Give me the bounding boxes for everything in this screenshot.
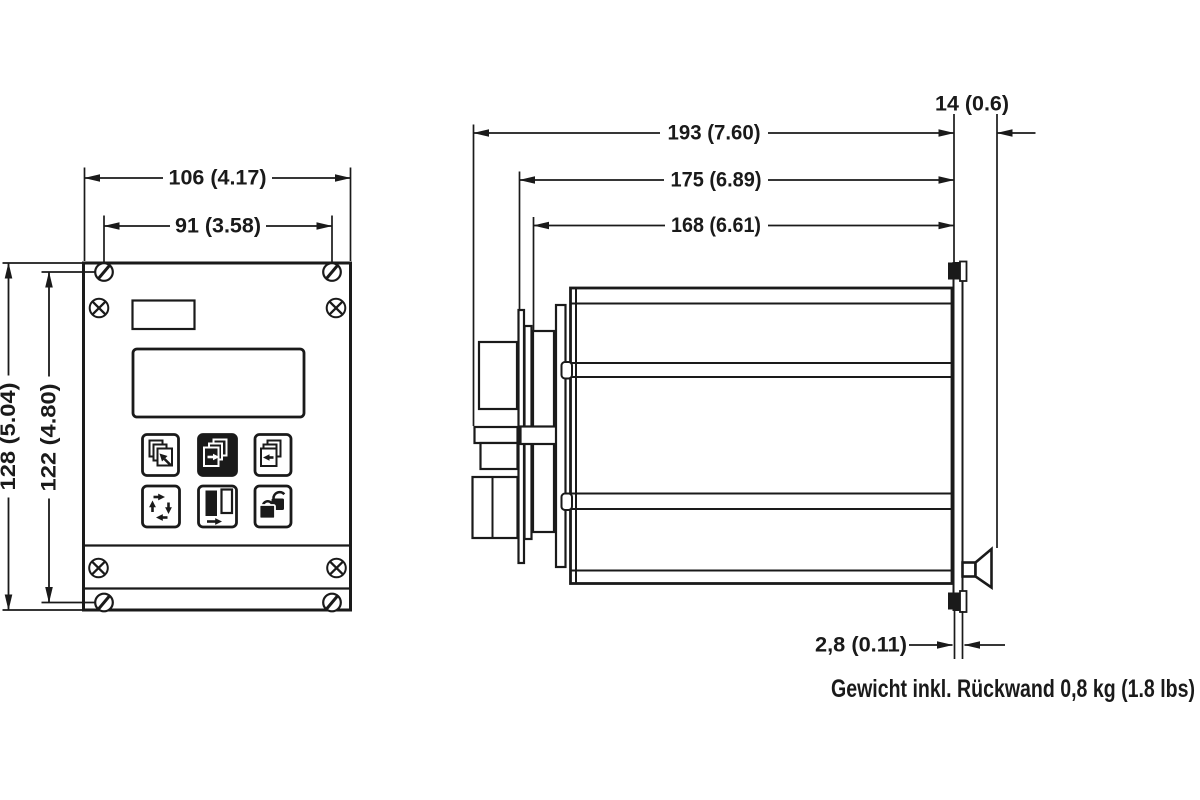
cross-screw-bottom-left xyxy=(89,559,108,578)
cross-screw-bottom-right xyxy=(327,559,346,578)
dim-height-fixings: 122 (4.80) xyxy=(38,384,61,492)
rear-connector-top xyxy=(479,342,517,409)
lcd-display-window xyxy=(133,349,304,417)
case-body xyxy=(571,288,953,584)
button-pages-up-left xyxy=(143,435,179,476)
rail-tab-top xyxy=(562,362,573,379)
button-pages-right-inverted xyxy=(199,435,237,476)
rear-connector-mid-upper xyxy=(475,427,518,443)
slotted-screw-bottom-right xyxy=(323,594,341,612)
dim-depth-total: 193 (7.60) xyxy=(668,122,761,145)
rear-connector-mid-lower xyxy=(481,443,518,469)
dim-front-panel-thickness: 2,8 (0.11) xyxy=(815,634,907,657)
type-label-window xyxy=(133,301,195,330)
button-pages-left xyxy=(255,435,291,476)
button-lock xyxy=(255,486,291,527)
dimension-drawing: 106 (4.17) 91 (3.58) 128 (5.04) 122 (4.8… xyxy=(0,0,1200,800)
front-panel-plate xyxy=(954,263,963,610)
cross-screw-top-right xyxy=(327,299,346,318)
front-view xyxy=(84,263,351,611)
rear-plate-3 xyxy=(556,305,566,567)
slotted-screw-top-left xyxy=(95,263,113,281)
rear-latch-bar xyxy=(521,427,559,445)
rear-connector-bottom xyxy=(473,477,518,538)
dimension-drawing-page: 106 (4.17) 91 (3.58) 128 (5.04) 122 (4.8… xyxy=(0,0,1200,800)
side-view xyxy=(473,262,992,613)
dim-width-fixings: 91 (3.58) xyxy=(175,215,261,238)
dim-depth-behind-panel: 175 (6.89) xyxy=(671,169,762,192)
dim-height-total: 128 (5.04) xyxy=(0,383,20,491)
slotted-screw-bottom-left xyxy=(95,594,113,612)
mounting-clamp-horn xyxy=(963,549,992,588)
panel-clip-bottom xyxy=(948,591,967,612)
dim-depth-case: 168 (6.61) xyxy=(671,214,761,237)
cross-screw-top-left xyxy=(90,299,109,318)
button-four-arrows xyxy=(143,486,180,527)
panel-clip-top xyxy=(948,262,967,282)
rail-tab-bottom xyxy=(562,494,573,511)
dim-width-total: 106 (4.17) xyxy=(169,167,267,190)
dim-front-frame-depth: 14 (0.6) xyxy=(935,93,1009,116)
weight-note: Gewicht inkl. Rückwand 0,8 kg (1.8 lbs) xyxy=(831,675,1195,703)
slotted-screw-top-right xyxy=(323,263,341,281)
button-page-switch xyxy=(199,486,237,527)
